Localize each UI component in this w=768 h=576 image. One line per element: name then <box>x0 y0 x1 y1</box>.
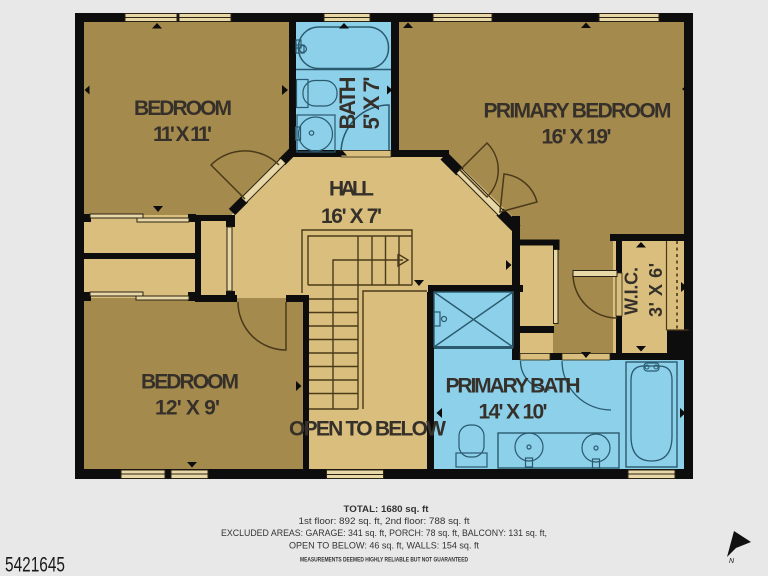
svg-text:16' X 19': 16' X 19' <box>542 126 612 149</box>
svg-text:BEDROOM: BEDROOM <box>141 371 239 394</box>
svg-text:5' X 7': 5' X 7' <box>359 77 384 130</box>
svg-text:MEASUREMENTS DEEMED HIGHLY REL: MEASUREMENTS DEEMED HIGHLY RELIABLE BUT … <box>300 558 469 564</box>
svg-text:1st floor: 892 sq. ft, 2nd flo: 1st floor: 892 sq. ft, 2nd floor: 788 sq… <box>299 516 471 526</box>
svg-text:OPEN TO BELOW: 46 sq. ft, WALL: OPEN TO BELOW: 46 sq. ft, WALLS: 154 sq.… <box>289 540 479 550</box>
svg-text:PRIMARY BATH: PRIMARY BATH <box>446 375 581 398</box>
svg-text:14' X 10': 14' X 10' <box>479 401 548 424</box>
svg-text:16' X 7': 16' X 7' <box>321 205 382 228</box>
svg-text:3' X 6': 3' X 6' <box>646 263 666 317</box>
svg-text:11' X 11': 11' X 11' <box>153 123 212 146</box>
svg-text:BATH: BATH <box>335 77 360 130</box>
svg-text:W.I.C.: W.I.C. <box>622 267 642 315</box>
svg-text:OPEN TO BELOW: OPEN TO BELOW <box>289 418 446 441</box>
svg-text:TOTAL: 1680 sq. ft: TOTAL: 1680 sq. ft <box>344 504 429 514</box>
svg-text:HALL: HALL <box>329 178 374 201</box>
svg-text:BEDROOM: BEDROOM <box>134 97 232 120</box>
svg-text:12' X 9': 12' X 9' <box>155 397 220 420</box>
svg-text:EXCLUDED AREAS: GARAGE: 341 sq: EXCLUDED AREAS: GARAGE: 341 sq. ft, PORC… <box>221 528 547 538</box>
svg-text:5421645: 5421645 <box>5 554 65 576</box>
svg-text:PRIMARY BEDROOM: PRIMARY BEDROOM <box>484 100 672 123</box>
